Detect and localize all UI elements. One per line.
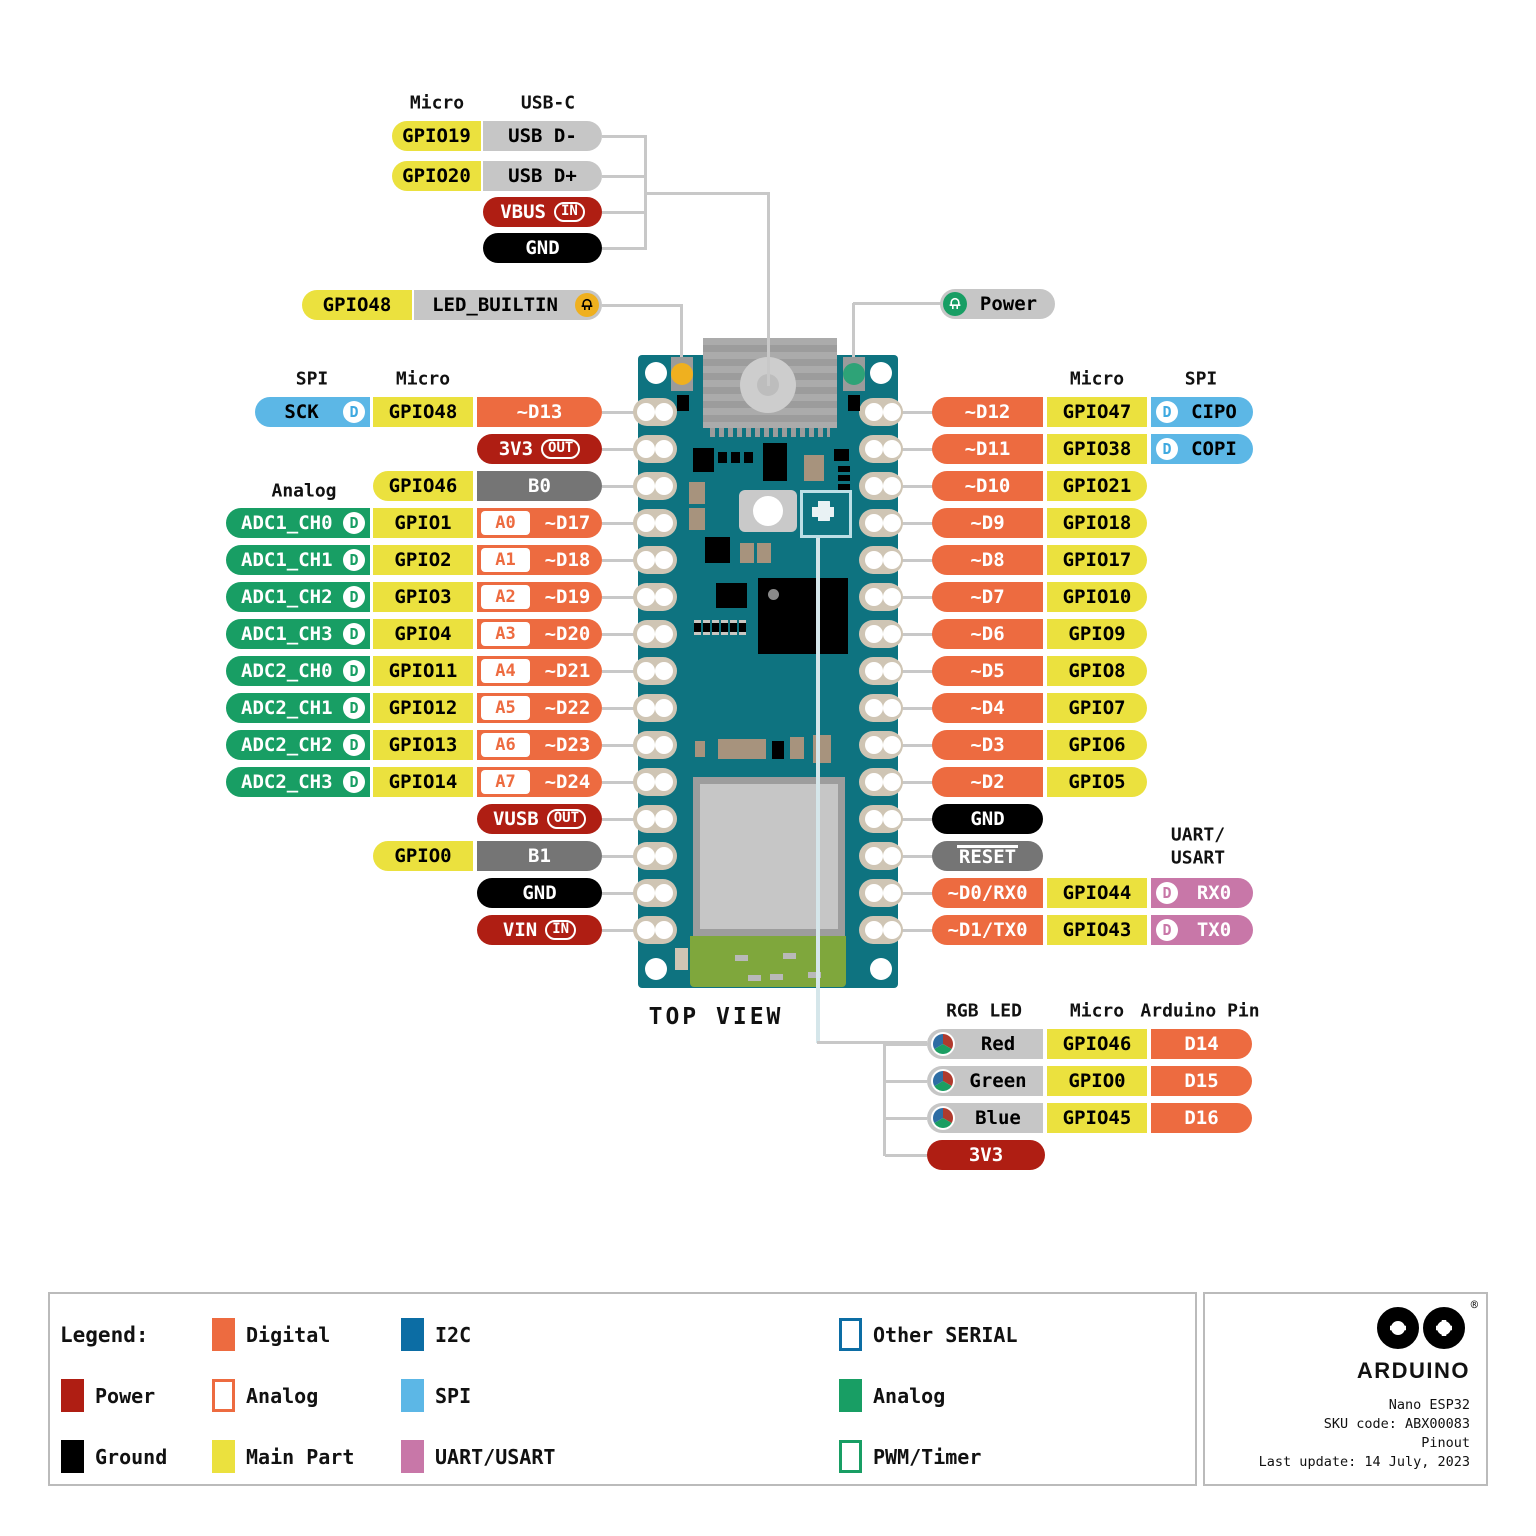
pin-hole <box>865 699 883 717</box>
arduino-pin-pill: ~D8 <box>932 545 1043 575</box>
pin-label-text: GPIO21 <box>1063 475 1132 497</box>
board-component <box>763 443 787 481</box>
pin-label-text: COPI <box>1191 438 1237 460</box>
wire <box>645 192 769 195</box>
pin-label-text: GPIO10 <box>1063 586 1132 608</box>
d-badge-icon: D <box>1156 919 1178 941</box>
pin-label-text: B1 <box>528 845 551 867</box>
board-part <box>848 395 860 411</box>
pin-label-text: LED_BUILTIN <box>432 294 558 316</box>
wire <box>767 192 770 386</box>
mounting-hole <box>645 958 667 980</box>
right-header-spi: SPI <box>1185 369 1218 390</box>
pin-label-text: GPIO8 <box>1068 660 1125 682</box>
pin-hole <box>655 588 673 606</box>
direction-badge: IN <box>554 202 585 222</box>
pin-hole <box>883 551 901 569</box>
bus-pin-pill: ADC2_CH2D <box>226 730 370 760</box>
wire <box>885 1080 927 1083</box>
pin-hole <box>865 440 883 458</box>
legend-label: Power <box>95 1384 155 1408</box>
d-badge-icon: D <box>343 623 365 645</box>
board-component <box>744 452 753 463</box>
antenna-pad <box>748 975 761 981</box>
wire <box>898 707 934 710</box>
wire <box>898 892 934 895</box>
d-badge-icon: D <box>343 771 365 793</box>
info-box: ® ARDUINO Nano ESP32SKU code: ABX00083Pi… <box>1203 1292 1488 1486</box>
mounting-hole <box>870 958 892 980</box>
pin-label-text: GPIO17 <box>1063 549 1132 571</box>
arduino-pin-pill: ~D7 <box>932 582 1043 612</box>
micro-pin-pill: GPIO7 <box>1047 693 1147 723</box>
legend-label: Digital <box>246 1323 330 1347</box>
board-component <box>716 583 747 608</box>
micro-pin-pill: GPIO48 <box>373 397 473 427</box>
pin-label-text: Green <box>969 1070 1026 1092</box>
board-component <box>834 449 849 461</box>
rgb-header-led: RGB LED <box>946 1001 1022 1022</box>
pin-hole <box>655 514 673 532</box>
wire <box>885 1117 927 1120</box>
board-component <box>718 739 766 759</box>
micro-pin-pill: GPIO14 <box>373 767 473 797</box>
led-icon <box>580 298 594 313</box>
arduino-pin-pill: D14 <box>1151 1029 1252 1059</box>
led-builtin-pill: LED_BUILTIN <box>414 290 602 320</box>
pin-label-text: ~D8 <box>970 549 1004 571</box>
arduino-pin-pill: VUSBOUT <box>477 804 602 834</box>
legend-title: Legend: <box>60 1323 149 1347</box>
arduino-pin-pill: ~D5 <box>932 656 1043 686</box>
pin-hole <box>637 699 655 717</box>
d-badge-icon: D <box>1156 882 1178 904</box>
arduino-pin-pill: ~D13 <box>477 397 602 427</box>
board-component <box>838 475 850 481</box>
micro-pin-pill: GPIO9 <box>1047 619 1147 649</box>
pin-label-text: GPIO38 <box>1063 438 1132 460</box>
legend-label: PWM/Timer <box>873 1445 981 1469</box>
wire <box>898 929 934 932</box>
arduino-pin-pill: A6~D23 <box>477 730 602 760</box>
micro-pin-pill: GPIO1 <box>373 508 473 538</box>
rgb-led-icon <box>930 1031 956 1057</box>
pin-hole <box>865 625 883 643</box>
micro-pin-pill: GPIO19 <box>392 121 481 151</box>
pin-label-text: RESET <box>957 845 1018 868</box>
pin-hole <box>883 588 901 606</box>
power-led <box>843 363 865 385</box>
arduino-pin-pill: ~D0/RX0 <box>932 878 1043 908</box>
pin-hole <box>865 477 883 495</box>
pin-label-text: ADC1_CH3 <box>241 623 333 645</box>
arduino-pin-pill: ~D10 <box>932 471 1043 501</box>
usb-pin-pill: USB D- <box>483 121 602 151</box>
micro-pin-pill: GPIO46 <box>1047 1029 1147 1059</box>
pin-hole <box>637 662 655 680</box>
micro-pin-pill: GPIO10 <box>1047 582 1147 612</box>
pin-hole <box>655 699 673 717</box>
pin-hole <box>655 662 673 680</box>
board-component <box>731 452 740 463</box>
pin-label-text: GPIO3 <box>394 586 451 608</box>
pin-hole <box>865 736 883 754</box>
pin-hole <box>637 884 655 902</box>
arduino-pin-pill: ~D1/TX0 <box>932 915 1043 945</box>
pin-label-text: GND <box>525 237 559 259</box>
board-component <box>695 741 705 757</box>
usb-pin-pill: VBUSIN <box>483 197 602 227</box>
wire <box>898 485 934 488</box>
arduino-pin-pill: B0 <box>477 471 602 501</box>
arduino-pin-pill: B1 <box>477 841 602 871</box>
rgb-channel-pill: Red <box>927 1029 1043 1059</box>
pin-label-text: GPIO47 <box>1063 401 1132 423</box>
d-badge-icon: D <box>343 401 365 423</box>
board-part <box>812 501 818 507</box>
board-part <box>830 517 836 523</box>
analog-pin-badge: A6 <box>481 733 530 757</box>
wire <box>816 532 820 1043</box>
usb-pin-pill: GND <box>483 233 602 263</box>
pin-hole <box>637 921 655 939</box>
bus-pin-pill: ADC1_CH3D <box>226 619 370 649</box>
legend-swatch-pwm-outline <box>839 1440 862 1473</box>
board-part <box>677 395 689 411</box>
pin-hole <box>865 810 883 828</box>
arduino-pin-pill: GND <box>932 804 1043 834</box>
analog-pin-badge: A1 <box>481 548 530 572</box>
product-info-line: Last update: 14 July, 2023 <box>1259 1453 1470 1472</box>
wire <box>602 175 647 178</box>
pin-label-text: ~D1/TX0 <box>947 919 1027 941</box>
arduino-pin-pill: A3~D20 <box>477 619 602 649</box>
pin-label-text: VUSB <box>493 808 539 830</box>
arduino-pin-pill: ~D6 <box>932 619 1043 649</box>
bus-pin-pill: ADC1_CH0D <box>226 508 370 538</box>
direction-badge: OUT <box>541 439 580 459</box>
micro-pin-pill: GPIO2 <box>373 545 473 575</box>
pin-label-text: ~D13 <box>517 401 563 423</box>
micro-pin-pill: GPIO38 <box>1047 434 1147 464</box>
pin-hole <box>865 514 883 532</box>
legend-label: Main Part <box>246 1445 354 1469</box>
analog-pin-badge: A3 <box>481 622 530 646</box>
brand-name: ARDUINO <box>1357 1358 1470 1384</box>
pin-label-text: GPIO5 <box>1068 771 1125 793</box>
pin-hole <box>883 699 901 717</box>
bus-pin-pill: COPID <box>1151 434 1253 464</box>
pin-label-text: GPIO18 <box>1063 512 1132 534</box>
board-component <box>689 508 705 530</box>
wire <box>898 596 934 599</box>
analog-pin-badge: A2 <box>481 585 530 609</box>
pin-label-text: ADC1_CH2 <box>241 586 333 608</box>
pin-label-text: GPIO13 <box>389 734 458 756</box>
micro-pin-pill: GPIO0 <box>1047 1066 1147 1096</box>
pin-label-text: ADC2_CH1 <box>241 697 333 719</box>
pin-hole <box>883 514 901 532</box>
right-header-micro: Micro <box>1070 369 1124 390</box>
arduino-pin-pill: A2~D19 <box>477 582 602 612</box>
wire <box>898 411 934 414</box>
d-badge-icon: D <box>1156 401 1178 423</box>
antenna-area <box>690 936 846 987</box>
pin-hole <box>883 662 901 680</box>
legend-swatch-analog-outline <box>212 1379 235 1412</box>
product-info-line: Pinout <box>1259 1434 1470 1453</box>
pin-hole <box>883 736 901 754</box>
pin-label-text: ~D6 <box>970 623 1004 645</box>
pin-hole <box>865 773 883 791</box>
pin-label-text: GPIO44 <box>1063 882 1132 904</box>
pin-label-text: ~D3 <box>970 734 1004 756</box>
bus-pin-pill: RX0D <box>1151 878 1253 908</box>
arduino-pin-pill: ~D11 <box>932 434 1043 464</box>
pin-hole <box>637 773 655 791</box>
micro-pin-pill: GPIO18 <box>1047 508 1147 538</box>
arduino-pin-pill: GND <box>477 878 602 908</box>
pin-label-text: ~D24 <box>533 771 602 793</box>
pin-hole <box>637 625 655 643</box>
pin-label-text: RX0 <box>1197 882 1231 904</box>
pin-label-text: VBUS <box>500 201 546 223</box>
d-badge-icon: D <box>343 549 365 571</box>
pin-label-text: ADC2_CH3 <box>241 771 333 793</box>
mounting-hole <box>645 362 667 384</box>
micro-pin-pill: GPIO44 <box>1047 878 1147 908</box>
pin-label-text: ~D19 <box>533 586 602 608</box>
pin-label-text: ~D17 <box>533 512 602 534</box>
legend-label: Ground <box>95 1445 167 1469</box>
pin-label-text: USB D- <box>508 125 577 147</box>
pin-label-text: GPIO20 <box>402 165 471 187</box>
legend-swatch-analog-green <box>839 1379 862 1412</box>
bus-pin-pill: SCKD <box>255 397 370 427</box>
pin-label-text: GPIO43 <box>1063 919 1132 941</box>
chip-dot <box>768 589 779 600</box>
legend-swatch-main <box>212 1440 235 1473</box>
pin-label-text: SCK <box>284 401 318 423</box>
board-component <box>772 741 784 759</box>
pin-hole <box>655 625 673 643</box>
arduino-pin-pill: A5~D22 <box>477 693 602 723</box>
right-header-uart-2: USART <box>1171 848 1225 869</box>
board-component <box>739 620 746 635</box>
pin-hole <box>655 551 673 569</box>
micro-pin-pill: GPIO11 <box>373 656 473 686</box>
board-component <box>838 466 850 472</box>
micro-pin-pill: GPIO45 <box>1047 1103 1147 1133</box>
builtin-led-icon <box>575 293 599 317</box>
pin-hole <box>883 440 901 458</box>
d-badge-icon: D <box>343 586 365 608</box>
pin-hole <box>883 847 901 865</box>
wire <box>602 304 682 307</box>
d-badge-icon: D <box>343 660 365 682</box>
pin-label-text: ADC2_CH2 <box>241 734 333 756</box>
antenna-pad <box>783 953 796 959</box>
pin-hole <box>637 403 655 421</box>
pin-hole <box>637 810 655 828</box>
pin-label-text: VIN <box>503 919 537 941</box>
legend-swatch-power <box>61 1379 84 1412</box>
pin-label-text: ADC1_CH0 <box>241 512 333 534</box>
bus-pin-pill: TX0D <box>1151 915 1253 945</box>
registered-mark: ® <box>1471 1298 1478 1312</box>
bus-pin-pill: ADC2_CH3D <box>226 767 370 797</box>
wire <box>602 247 647 250</box>
pin-label-text: GPIO2 <box>394 549 451 571</box>
pin-label-text: GPIO46 <box>1063 1033 1132 1055</box>
wire <box>883 1042 886 1156</box>
micro-pin-pill: GPIO48 <box>302 290 412 320</box>
pin-label-text: GPIO4 <box>394 623 451 645</box>
pin-label-text: TX0 <box>1197 919 1231 941</box>
micro-pin-pill: GPIO4 <box>373 619 473 649</box>
rgb-header-arduino-pin: Arduino Pin <box>1140 1001 1259 1022</box>
left-header-micro: Micro <box>396 369 450 390</box>
top-header-usbc: USB-C <box>521 93 575 114</box>
legend-label: UART/USART <box>435 1445 555 1469</box>
legend-label: Analog <box>873 1384 945 1408</box>
board-component <box>689 482 705 504</box>
micro-pin-pill: GPIO6 <box>1047 730 1147 760</box>
rgb-channel-pill: Green <box>927 1066 1043 1096</box>
direction-badge: IN <box>545 920 576 940</box>
pin-label-text: GND <box>970 808 1004 830</box>
arduino-pin-pill: D16 <box>1151 1103 1252 1133</box>
legend-swatch-digital <box>212 1318 235 1351</box>
pin-hole <box>883 625 901 643</box>
pin-label-text: Blue <box>975 1107 1021 1129</box>
board-component <box>740 543 754 563</box>
pin-label-text: ~D23 <box>533 734 602 756</box>
pin-hole <box>883 921 901 939</box>
pin-hole <box>655 477 673 495</box>
analog-pin-badge: A5 <box>481 696 530 720</box>
bus-pin-pill: ADC2_CH1D <box>226 693 370 723</box>
wire <box>602 135 647 138</box>
pin-hole <box>883 884 901 902</box>
pinout-diagram: MicroUSB-CGPIO19USB D-GPIO20USB D+VBUSIN… <box>0 0 1536 1536</box>
arduino-pin-pill: A1~D18 <box>477 545 602 575</box>
pin-label-text: GPIO14 <box>389 771 458 793</box>
product-info-line: SKU code: ABX00083 <box>1259 1415 1470 1434</box>
micro-pin-pill: GPIO46 <box>373 471 473 501</box>
pin-label-text: ADC1_CH1 <box>241 549 333 571</box>
analog-pin-badge: A7 <box>481 770 530 794</box>
pin-hole <box>865 588 883 606</box>
board-component <box>757 543 771 563</box>
pin-label-text: D14 <box>1184 1033 1218 1055</box>
board-component <box>804 455 824 481</box>
pin-label-text: GPIO1 <box>394 512 451 534</box>
board-component <box>703 620 710 635</box>
wire <box>602 211 647 214</box>
wire <box>898 855 934 858</box>
left-header-spi: SPI <box>296 369 329 390</box>
pin-label-text: ~D22 <box>533 697 602 719</box>
analog-pin-badge: A4 <box>481 659 530 683</box>
legend-swatch-i2c <box>401 1318 424 1351</box>
pin-label-text: GPIO7 <box>1068 697 1125 719</box>
left-header-analog: Analog <box>271 481 336 502</box>
pin-label-text: D16 <box>1184 1107 1218 1129</box>
shield-teeth <box>710 428 830 437</box>
pin-hole <box>637 551 655 569</box>
antenna-pad <box>735 955 748 961</box>
d-badge-icon: D <box>343 697 365 719</box>
wire <box>898 818 934 821</box>
pin-label-text: USB D+ <box>508 165 577 187</box>
pin-label-text: GPIO0 <box>1068 1070 1125 1092</box>
pin-hole <box>655 884 673 902</box>
pin-hole <box>637 514 655 532</box>
pin-label-text: ~D18 <box>533 549 602 571</box>
usb-pin-pill: USB D+ <box>483 161 602 191</box>
pin-hole <box>637 847 655 865</box>
board-component <box>705 537 730 563</box>
pin-hole <box>637 440 655 458</box>
pin-label-text: ~D7 <box>970 586 1004 608</box>
pin-hole <box>655 773 673 791</box>
arduino-pin-pill: A7~D24 <box>477 767 602 797</box>
pin-hole <box>883 773 901 791</box>
pin-hole <box>637 736 655 754</box>
pin-hole <box>655 736 673 754</box>
pin-label-text: GPIO12 <box>389 697 458 719</box>
product-info-line: Nano ESP32 <box>1259 1396 1470 1415</box>
arduino-pin-pill: ~D12 <box>932 397 1043 427</box>
pin-label-text: GPIO11 <box>389 660 458 682</box>
pin-label-text: GND <box>522 882 556 904</box>
pin-hole <box>865 662 883 680</box>
builtin-led <box>671 363 693 385</box>
right-header-uart-1: UART/ <box>1171 825 1225 846</box>
board-top-view-label: TOP VIEW <box>649 1004 784 1030</box>
bus-pin-pill: ADC1_CH1D <box>226 545 370 575</box>
legend-swatch-serial-outline <box>839 1318 862 1351</box>
wire <box>898 744 934 747</box>
arduino-pin-pill: ~D3 <box>932 730 1043 760</box>
wire <box>898 448 934 451</box>
pin-label-text: 3V3 <box>969 1144 1003 1166</box>
product-info-lines: Nano ESP32SKU code: ABX00083PinoutLast u… <box>1259 1396 1470 1472</box>
d-badge-icon: D <box>343 512 365 534</box>
wire <box>898 633 934 636</box>
wire <box>885 1154 927 1157</box>
wire <box>898 781 934 784</box>
pin-label-text: GPIO6 <box>1068 734 1125 756</box>
d-badge-icon: D <box>1156 438 1178 460</box>
top-header-micro: Micro <box>410 93 464 114</box>
pin-label-text: GPIO46 <box>389 475 458 497</box>
pin-label-text: ADC2_CH0 <box>241 660 333 682</box>
micro-pin-pill: GPIO20 <box>392 161 481 191</box>
pin-hole <box>655 847 673 865</box>
board-component <box>721 620 728 635</box>
pin-label-text: Power <box>980 293 1037 315</box>
board-part <box>830 501 836 507</box>
legend-label: SPI <box>435 1384 471 1408</box>
micro-pin-pill: GPIO43 <box>1047 915 1147 945</box>
wire <box>898 559 934 562</box>
arduino-pin-pill: D15 <box>1151 1066 1252 1096</box>
wire <box>898 522 934 525</box>
board-component <box>712 620 719 635</box>
led-icon <box>948 297 962 312</box>
